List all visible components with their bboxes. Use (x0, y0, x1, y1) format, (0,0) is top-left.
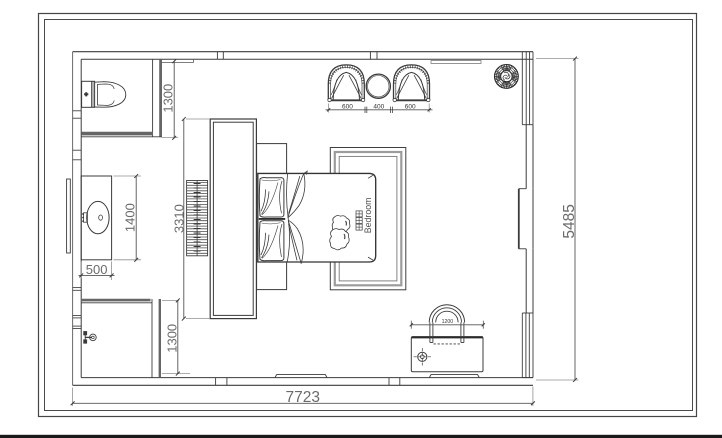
svg-text:Bedroom: Bedroom (363, 198, 373, 234)
svg-text:5485: 5485 (561, 204, 578, 238)
svg-text:1200: 1200 (442, 319, 454, 325)
svg-text:7723: 7723 (286, 389, 320, 406)
svg-text:600: 600 (405, 104, 416, 111)
svg-text:600: 600 (342, 104, 353, 111)
svg-text:1300: 1300 (164, 324, 179, 353)
svg-text:1300: 1300 (160, 84, 175, 113)
svg-text:500: 500 (86, 262, 108, 277)
svg-text:1400: 1400 (123, 203, 138, 232)
svg-text:400: 400 (373, 104, 384, 111)
svg-text:3310: 3310 (171, 204, 186, 233)
